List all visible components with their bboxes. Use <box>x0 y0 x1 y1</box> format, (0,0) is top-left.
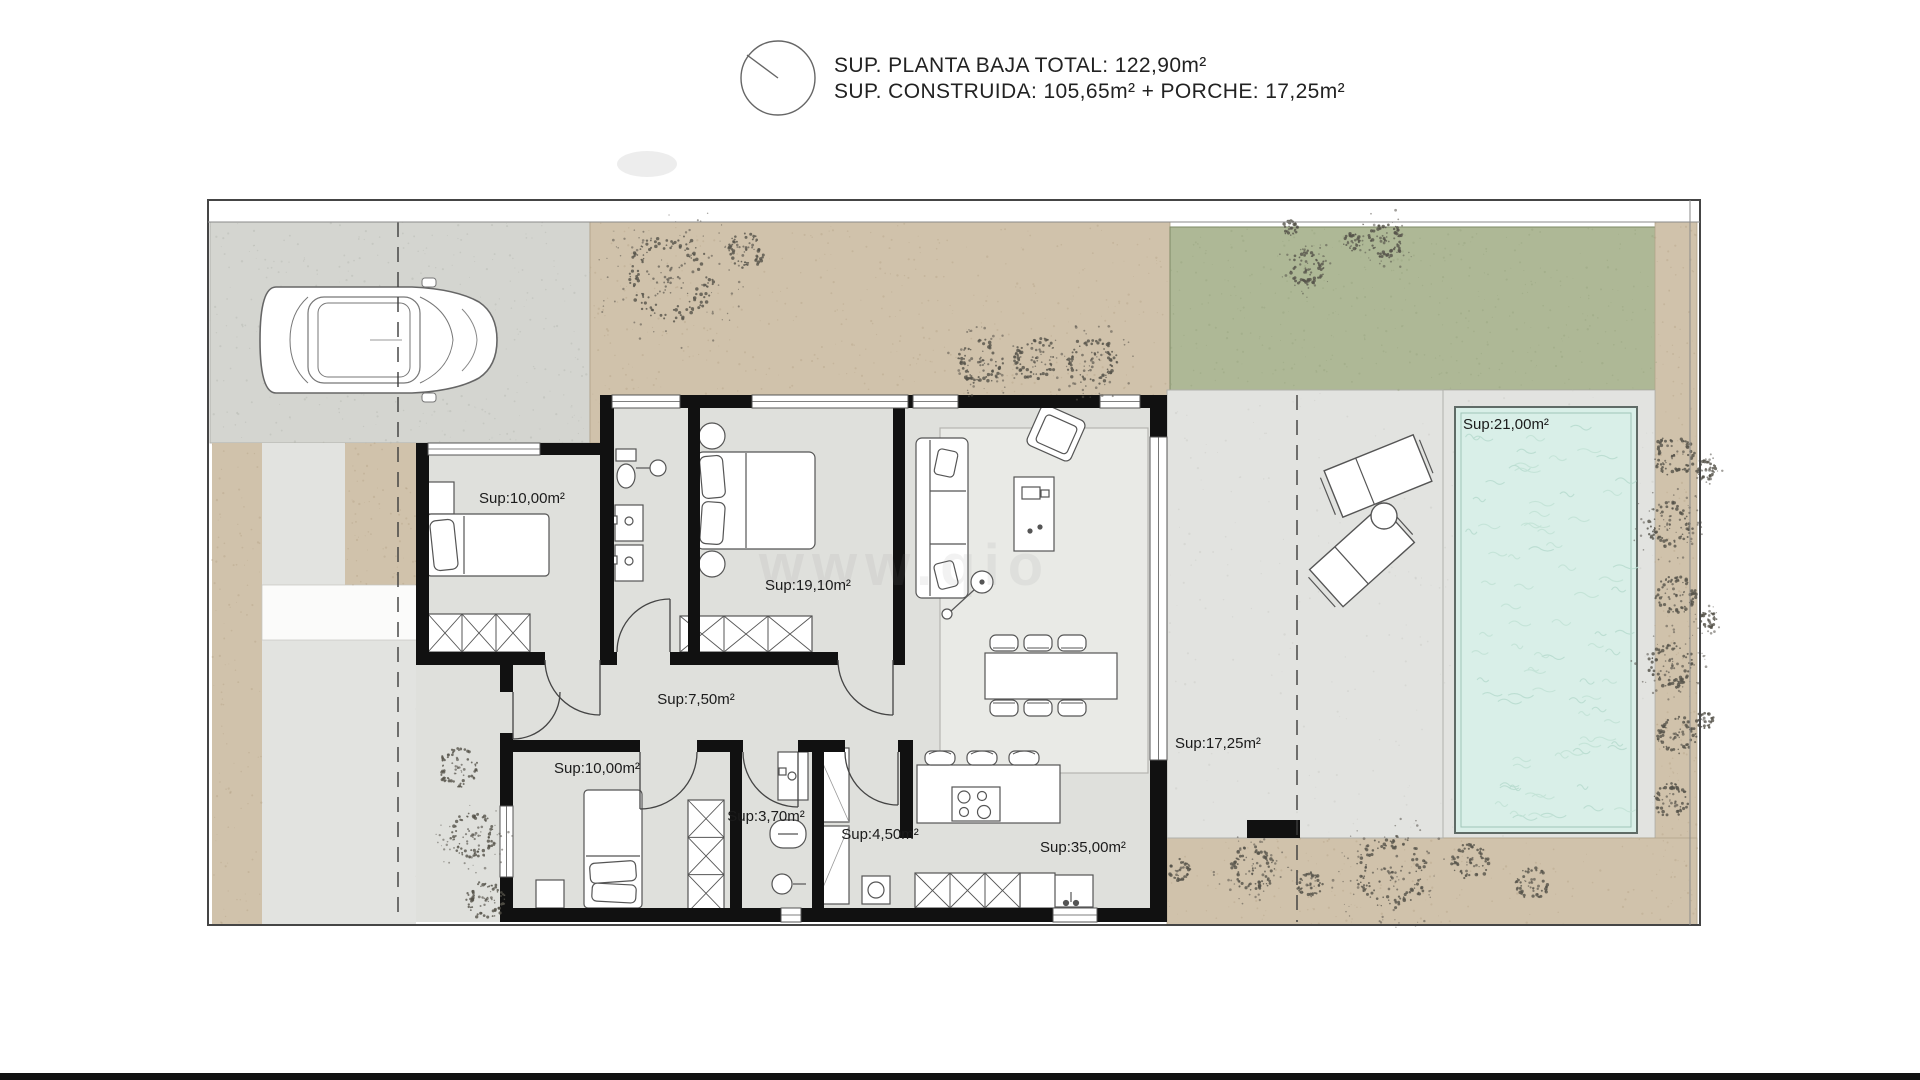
room-label-master-bedroom: Sup:19,10m² <box>765 577 851 594</box>
wall-segment <box>893 395 905 652</box>
room-label-porch: Sup:17,25m² <box>1175 735 1261 752</box>
wall-segment <box>801 908 1053 922</box>
wall-segment <box>697 740 743 752</box>
room-label-bathroom2: Sup:4,50m² <box>841 826 919 843</box>
floor-plan: SUP. PLANTA BAJA TOTAL: 122,90m² SUP. CO… <box>0 0 1920 1080</box>
dining-table <box>985 653 1117 699</box>
room-label-kitchen-living: Sup:35,00m² <box>1040 839 1126 856</box>
chair <box>990 635 1018 651</box>
room-label-bathroom1: Sup:3,70m² <box>727 808 805 825</box>
chair <box>990 700 1018 716</box>
wall-segment <box>1247 820 1300 838</box>
car-top-view <box>260 278 497 402</box>
faint-artifact <box>617 151 677 177</box>
bar-stool <box>925 751 955 765</box>
wall-segment <box>505 740 640 752</box>
bottom-bar <box>0 1073 1920 1080</box>
wall-segment <box>416 652 545 665</box>
wall-segment <box>505 908 781 922</box>
wall-segment <box>416 443 429 665</box>
wall-segment <box>893 652 905 665</box>
room-label-bedroom2: Sup:10,00m² <box>554 760 640 777</box>
wardrobe <box>688 800 724 912</box>
car-mirror-top <box>422 278 436 287</box>
chair <box>1024 700 1052 716</box>
wall-segment <box>1150 395 1167 437</box>
wall-segment <box>600 455 614 655</box>
garden-sand-left-strip <box>212 443 262 925</box>
kitchen-sink-unit <box>1053 875 1093 907</box>
swimming-pool <box>1455 407 1638 833</box>
tree <box>1695 712 1715 729</box>
chair <box>1058 635 1086 651</box>
bar-stool <box>1009 751 1039 765</box>
garden-lawn <box>1170 227 1657 390</box>
wall-segment <box>900 740 913 838</box>
wall-segment <box>688 395 700 652</box>
wall-segment <box>812 752 824 912</box>
car-mirror-bottom <box>422 393 436 402</box>
chair <box>1058 700 1086 716</box>
garden-sand-bottom-right <box>1167 838 1697 925</box>
side-table <box>1371 503 1397 529</box>
wall-segment <box>730 752 742 912</box>
plan-title-line2: SUP. CONSTRUIDA: 105,65m² + PORCHE: 17,2… <box>834 80 1345 103</box>
bar-stool <box>967 751 997 765</box>
room-label-bedroom1: Sup:10,00m² <box>479 490 565 507</box>
wardrobe <box>428 614 530 652</box>
wall-segment <box>1150 760 1167 922</box>
wall-segment <box>798 740 845 752</box>
wardrobe <box>915 873 1020 908</box>
header: SUP. PLANTA BAJA TOTAL: 122,90m² SUP. CO… <box>741 41 1345 115</box>
room-label-pool: Sup:21,00m² <box>1463 416 1549 433</box>
room-label-hallway: Sup:7,50m² <box>657 691 735 708</box>
chair <box>1024 635 1052 651</box>
wall-segment <box>500 652 513 692</box>
wall-segment <box>670 652 838 665</box>
plan-title-line1: SUP. PLANTA BAJA TOTAL: 122,90m² <box>834 54 1207 77</box>
